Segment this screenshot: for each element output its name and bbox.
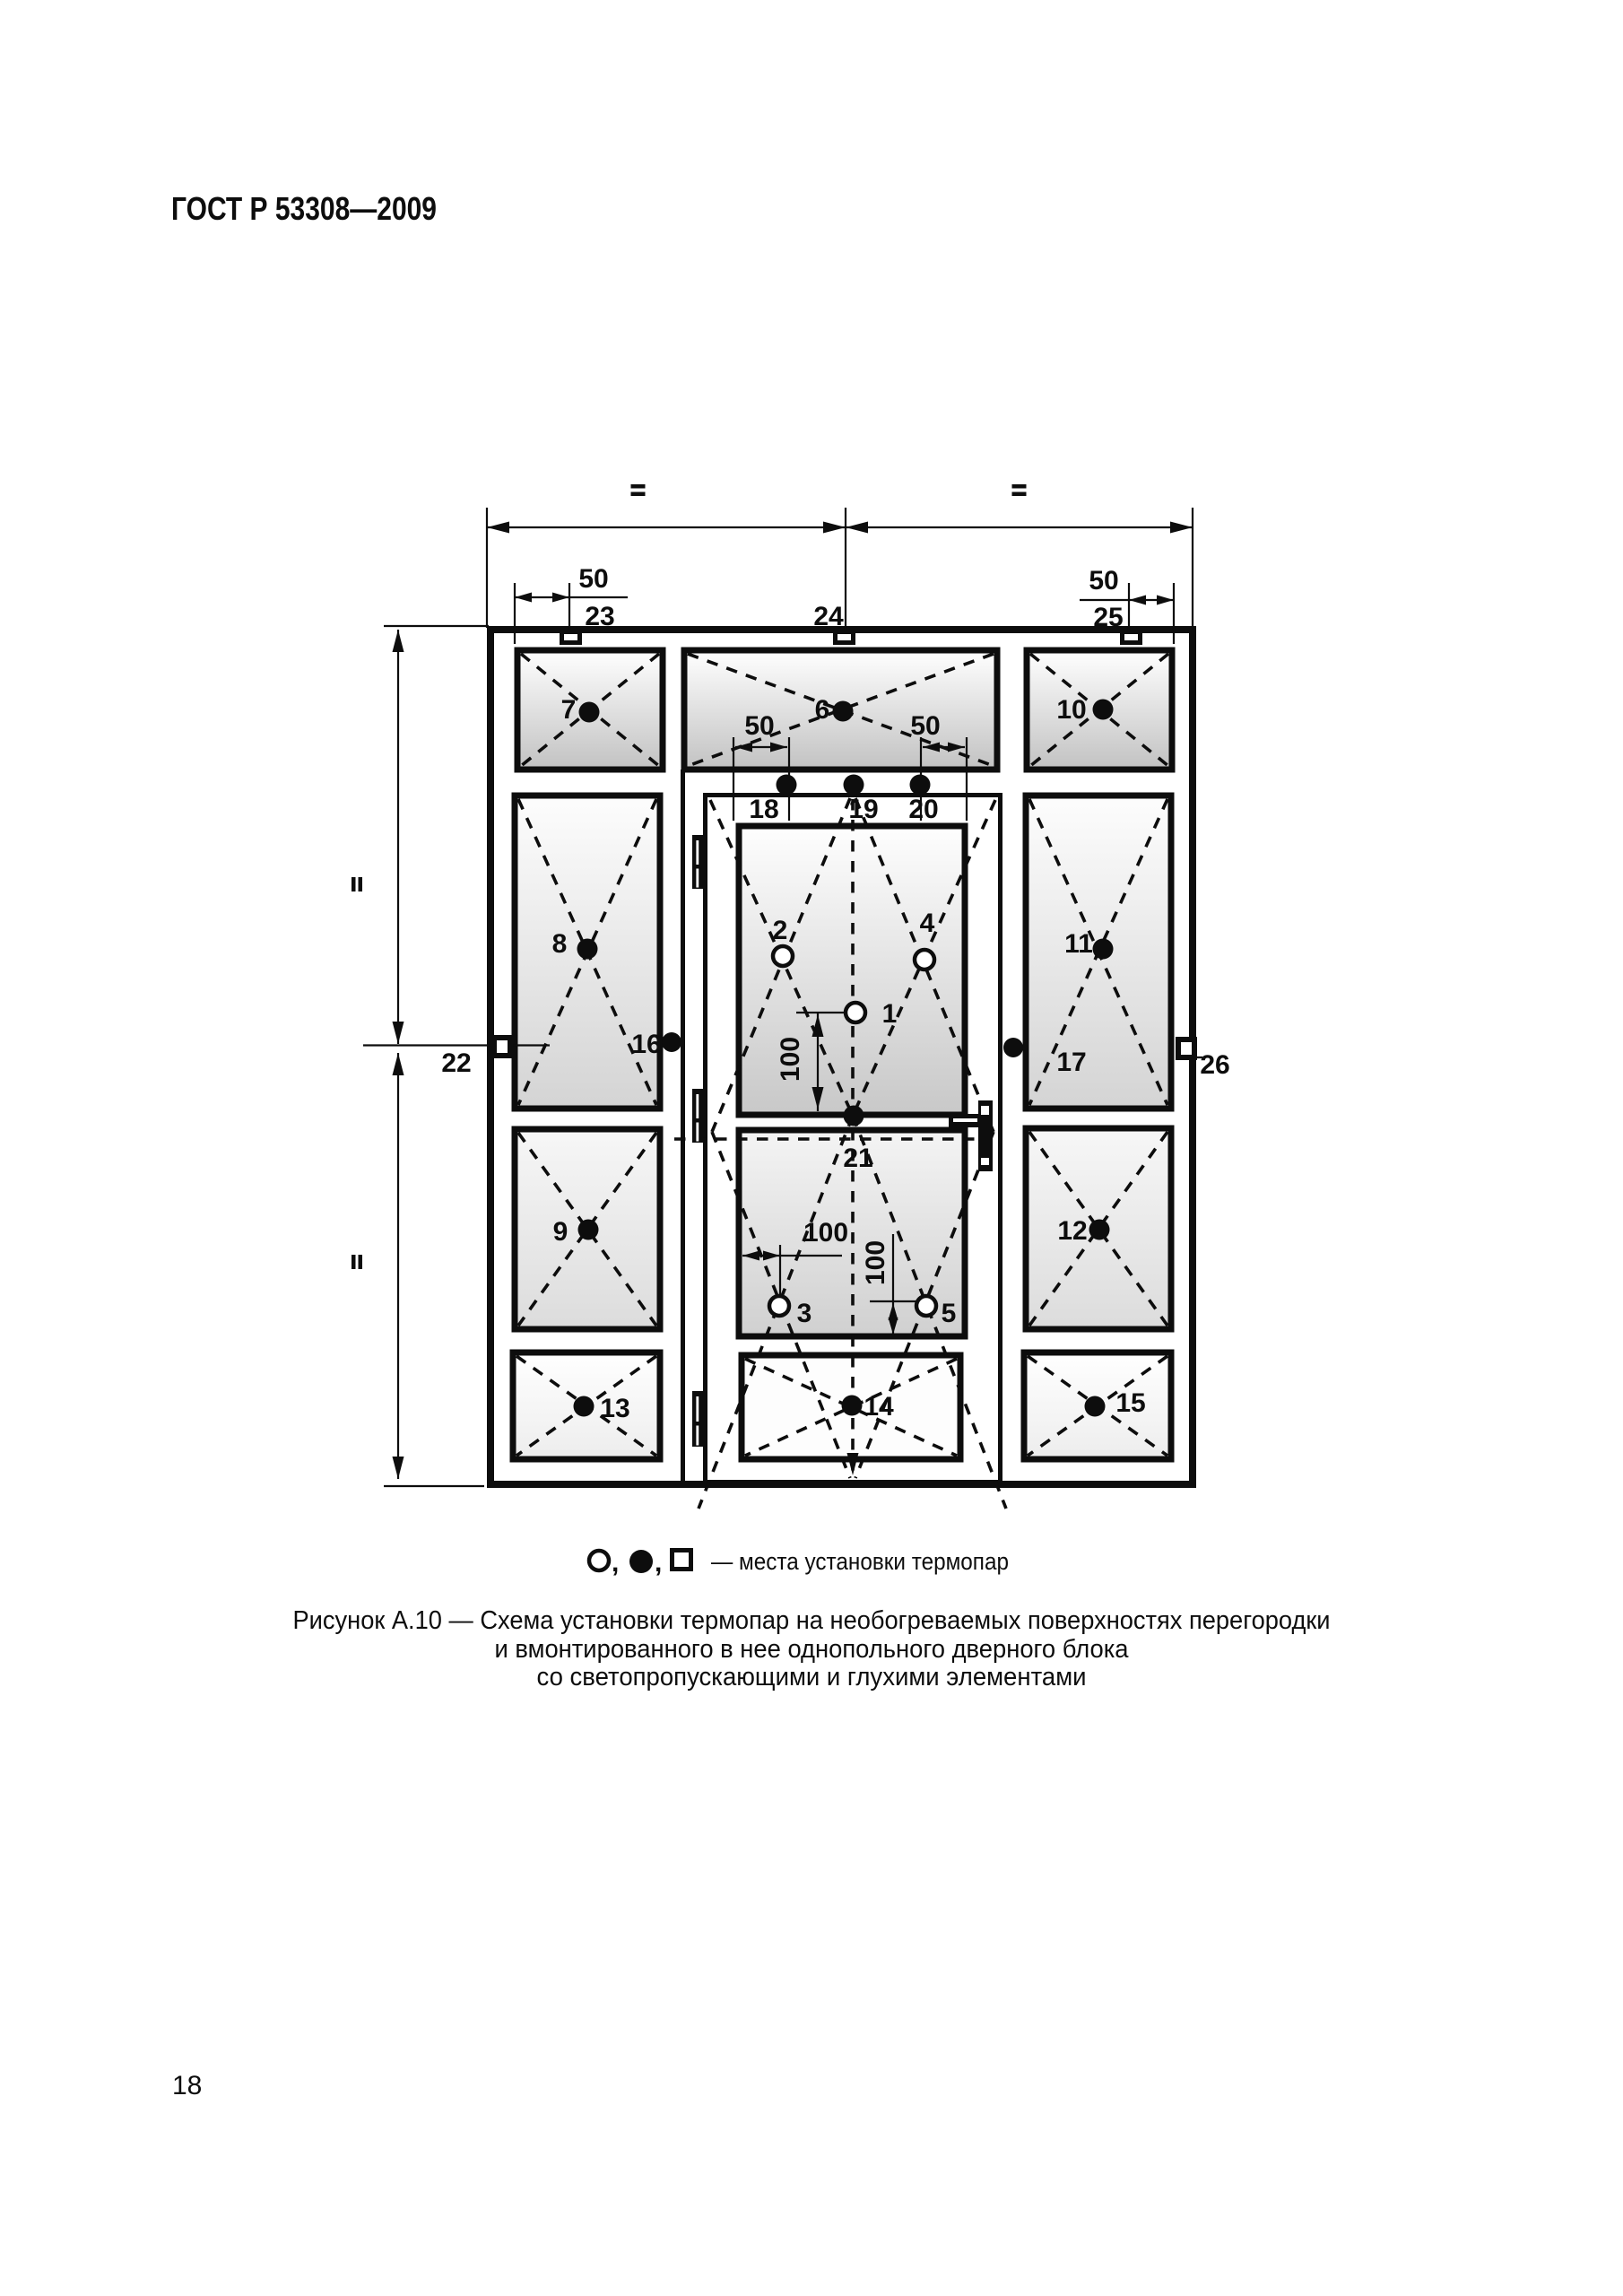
svg-text:24: 24 (813, 602, 844, 631)
svg-text:6: 6 (815, 695, 830, 725)
svg-text:100: 100 (776, 1037, 805, 1082)
svg-text:— места установки термопар: — места установки термопар (711, 1548, 1009, 1575)
svg-text:12: 12 (1057, 1216, 1087, 1246)
svg-text:20: 20 (908, 795, 938, 824)
svg-text:7: 7 (561, 695, 577, 725)
svg-text:22: 22 (441, 1048, 471, 1078)
svg-text:50: 50 (744, 711, 774, 741)
svg-text:ГОСТ Р 53308—2009: ГОСТ Р 53308—2009 (171, 190, 437, 227)
svg-text:со светопропускающими и глухим: со светопропускающими и глухими элемента… (537, 1663, 1087, 1692)
svg-text:18: 18 (172, 2071, 202, 2100)
svg-text:и вмонтированного в нее однопо: и вмонтированного в нее однопольного две… (495, 1635, 1129, 1664)
svg-text:9: 9 (553, 1217, 568, 1247)
svg-text:14: 14 (864, 1392, 894, 1422)
svg-text:1: 1 (882, 999, 898, 1029)
svg-text:21: 21 (843, 1144, 872, 1173)
svg-text:2: 2 (773, 916, 788, 945)
svg-text:15: 15 (1115, 1388, 1145, 1418)
svg-text:17: 17 (1056, 1048, 1086, 1077)
svg-text:23: 23 (585, 602, 614, 631)
svg-text:5: 5 (942, 1299, 957, 1328)
svg-text:50: 50 (1089, 566, 1118, 596)
svg-text:8: 8 (552, 929, 568, 959)
svg-text:50: 50 (578, 564, 608, 594)
svg-text:26: 26 (1200, 1050, 1229, 1080)
svg-text:4: 4 (920, 909, 935, 938)
svg-text:100: 100 (803, 1218, 848, 1248)
svg-text:13: 13 (600, 1394, 629, 1423)
svg-text:16: 16 (631, 1030, 661, 1059)
svg-text:10: 10 (1056, 695, 1086, 725)
svg-text:Рисунок А.10 — Схема установки: Рисунок А.10 — Схема установки термопар … (293, 1606, 1331, 1635)
svg-text:3: 3 (797, 1299, 812, 1328)
svg-text:11: 11 (1064, 929, 1093, 959)
svg-text:25: 25 (1093, 603, 1123, 632)
svg-text:18: 18 (749, 795, 778, 824)
svg-text:100: 100 (861, 1240, 890, 1285)
svg-text:,: , (655, 1548, 662, 1578)
svg-text:19: 19 (848, 795, 878, 824)
svg-text:50: 50 (910, 711, 940, 741)
svg-text:,: , (612, 1548, 619, 1578)
